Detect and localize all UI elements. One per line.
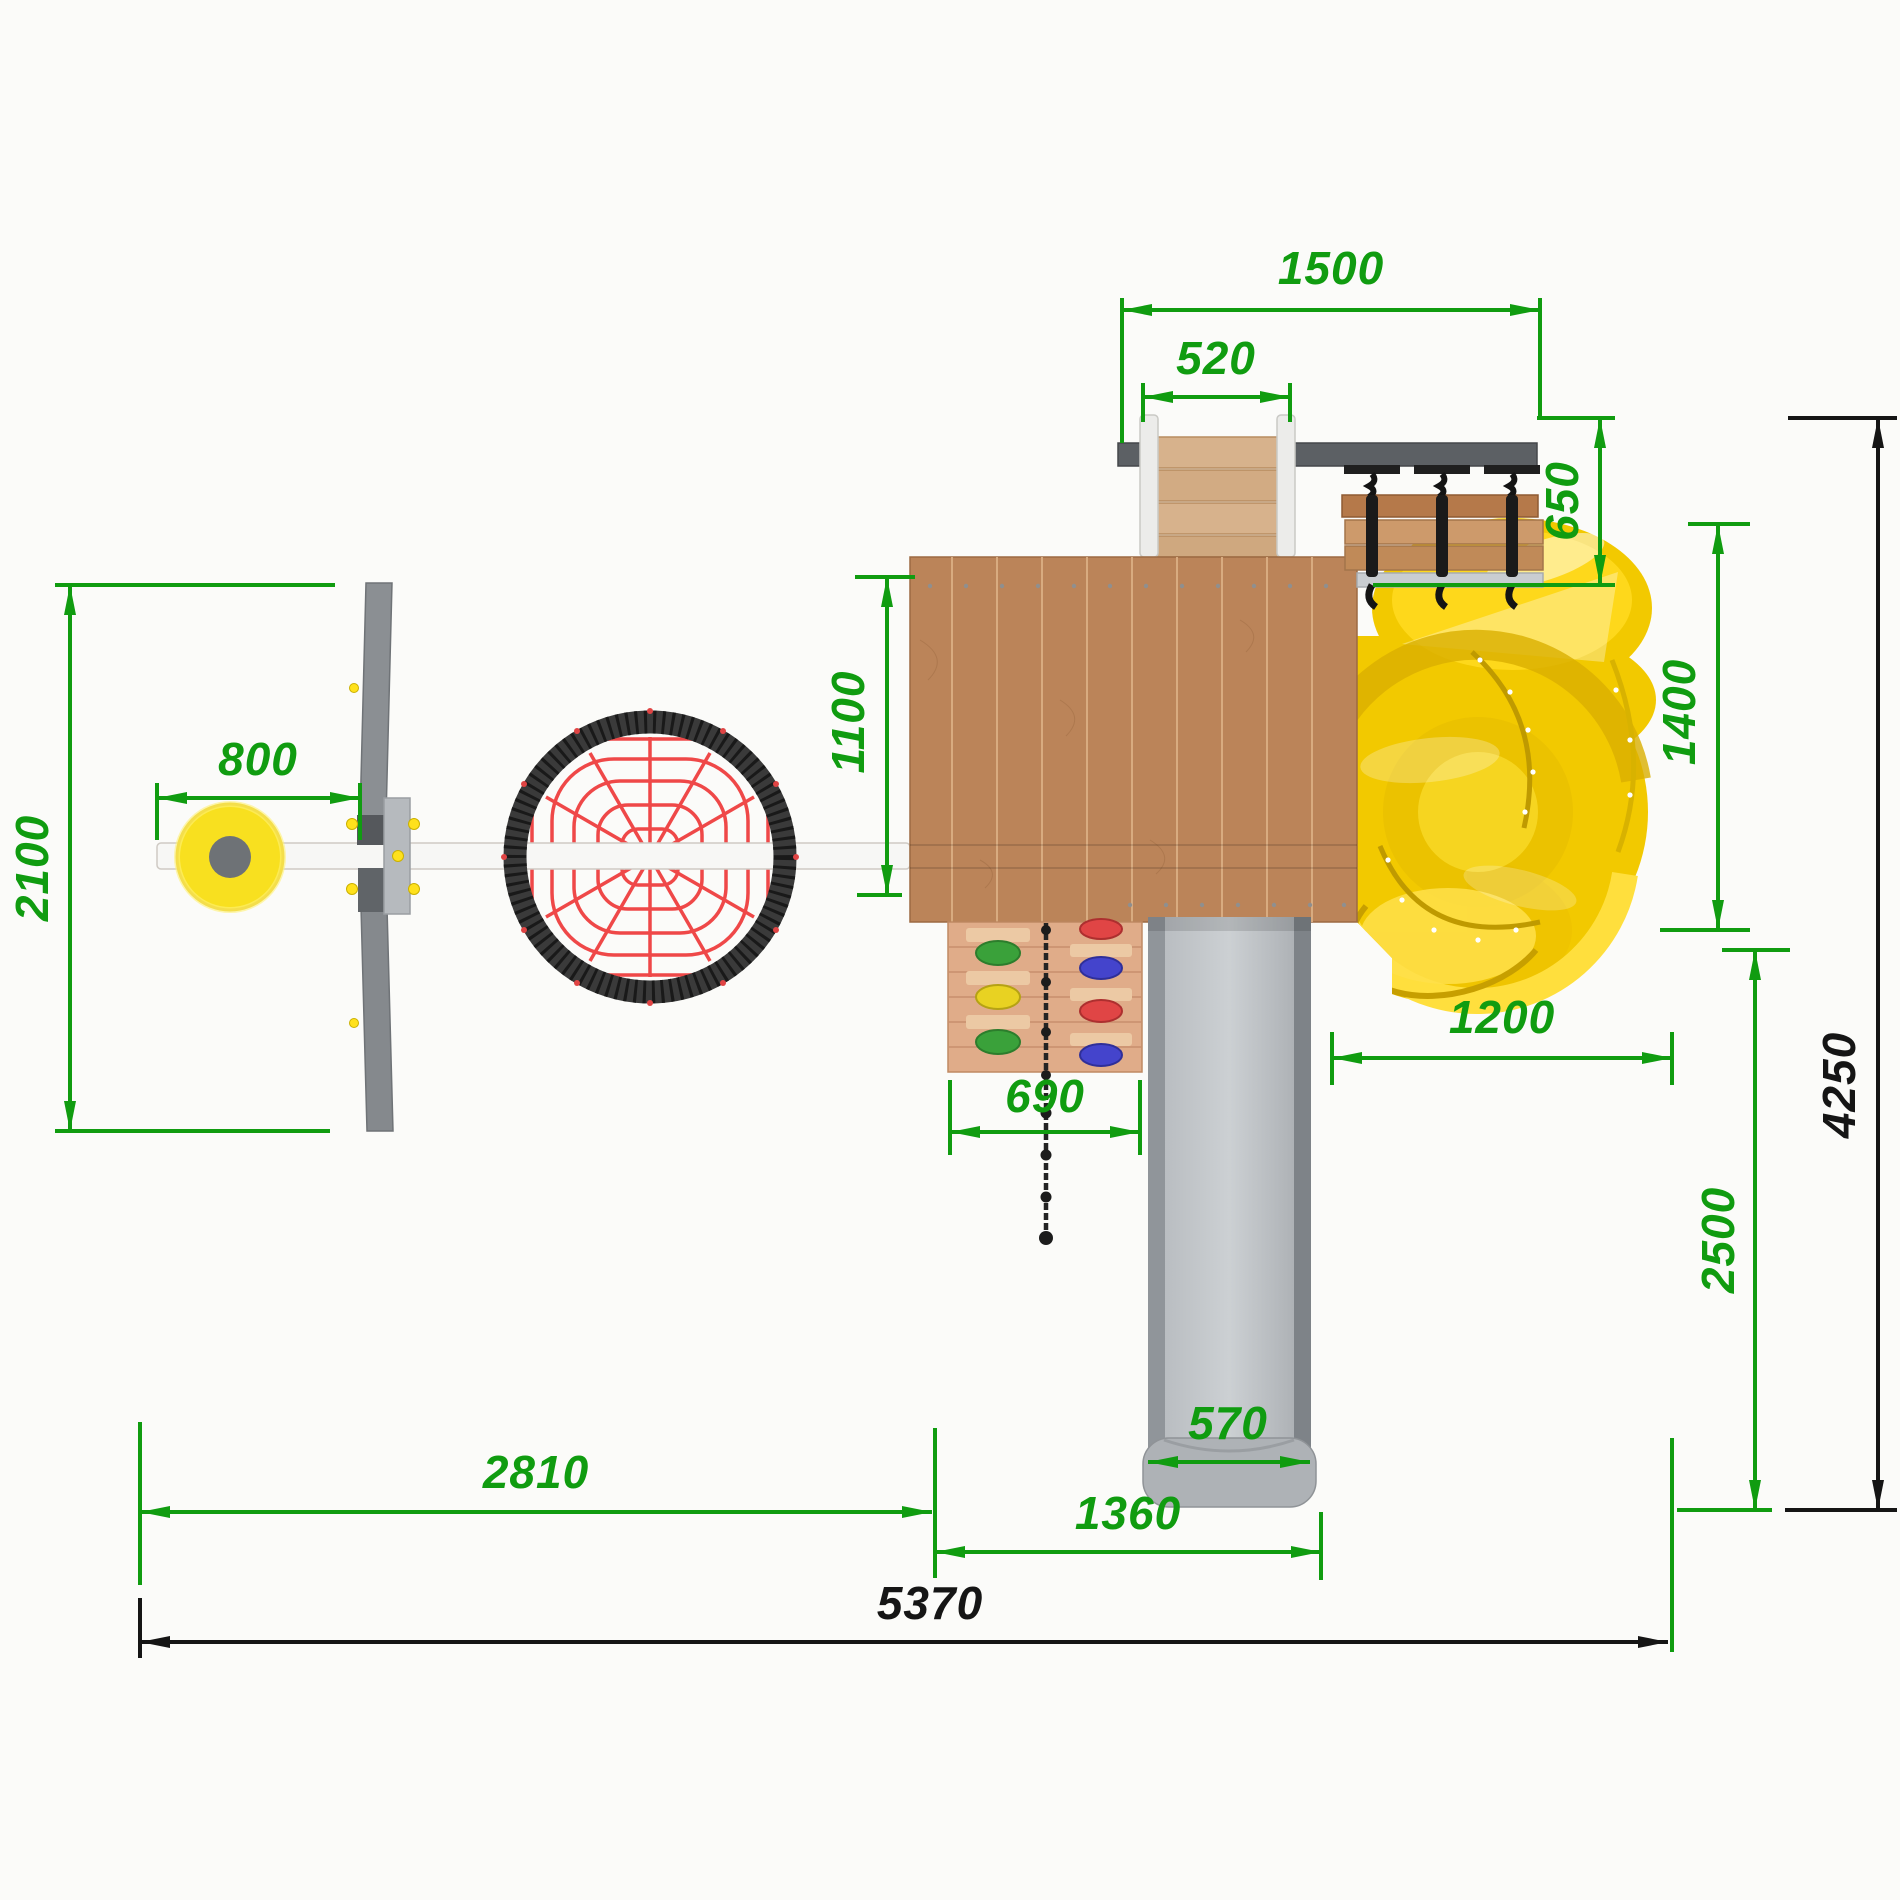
dim-label-2100: 2100 <box>6 815 58 922</box>
slide-rail-left <box>1148 917 1165 1457</box>
entry-ladder <box>1140 415 1295 557</box>
hold-blue <box>1080 957 1122 979</box>
ladder-rail <box>1140 415 1158 557</box>
swing-seat-center <box>209 836 251 878</box>
dim-label-4250: 4250 <box>1813 1032 1865 1139</box>
dim-label-5370: 5370 <box>877 1577 983 1629</box>
dim-label-520: 520 <box>1176 332 1256 384</box>
dim-label-1400: 1400 <box>1653 659 1705 765</box>
ladder-rung <box>1150 536 1283 557</box>
rope-end-knot <box>1039 1231 1053 1245</box>
slide-rail-right <box>1294 917 1311 1457</box>
playground-drawing: 1500 520 650 1400 2500 2100 800 1100 690… <box>0 0 1900 1900</box>
ladder-rung <box>1150 503 1283 534</box>
dim-label-800: 800 <box>218 733 298 785</box>
hold-yellow <box>976 985 1020 1009</box>
hold-red <box>1080 1000 1122 1022</box>
dim-label-650: 650 <box>1536 461 1588 541</box>
hold-red <box>1080 919 1122 939</box>
hold-blue <box>1080 1044 1122 1066</box>
dim-label-1360: 1360 <box>1075 1487 1181 1539</box>
ladder-rung <box>1150 437 1283 468</box>
spiral-tube-slide <box>1308 518 1656 1004</box>
dim-label-2810: 2810 <box>482 1446 589 1498</box>
dim-label-690: 690 <box>1005 1070 1085 1122</box>
drawing-canvas: 1500 520 650 1400 2500 2100 800 1100 690… <box>0 0 1900 1900</box>
ladder-rung <box>1150 470 1283 501</box>
dim-label-1500: 1500 <box>1278 242 1384 294</box>
ladder-rail <box>1277 415 1295 557</box>
hold-green <box>976 941 1020 965</box>
dim-label-1200: 1200 <box>1449 991 1555 1043</box>
dim-label-570: 570 <box>1188 1397 1268 1449</box>
swing-frame-leg-top <box>360 583 392 818</box>
platform <box>910 557 1357 922</box>
hold-green <box>976 1030 1020 1054</box>
swing-seat <box>177 804 283 910</box>
dim-label-1100: 1100 <box>822 671 874 774</box>
dim-label-2500: 2500 <box>1692 1187 1744 1294</box>
